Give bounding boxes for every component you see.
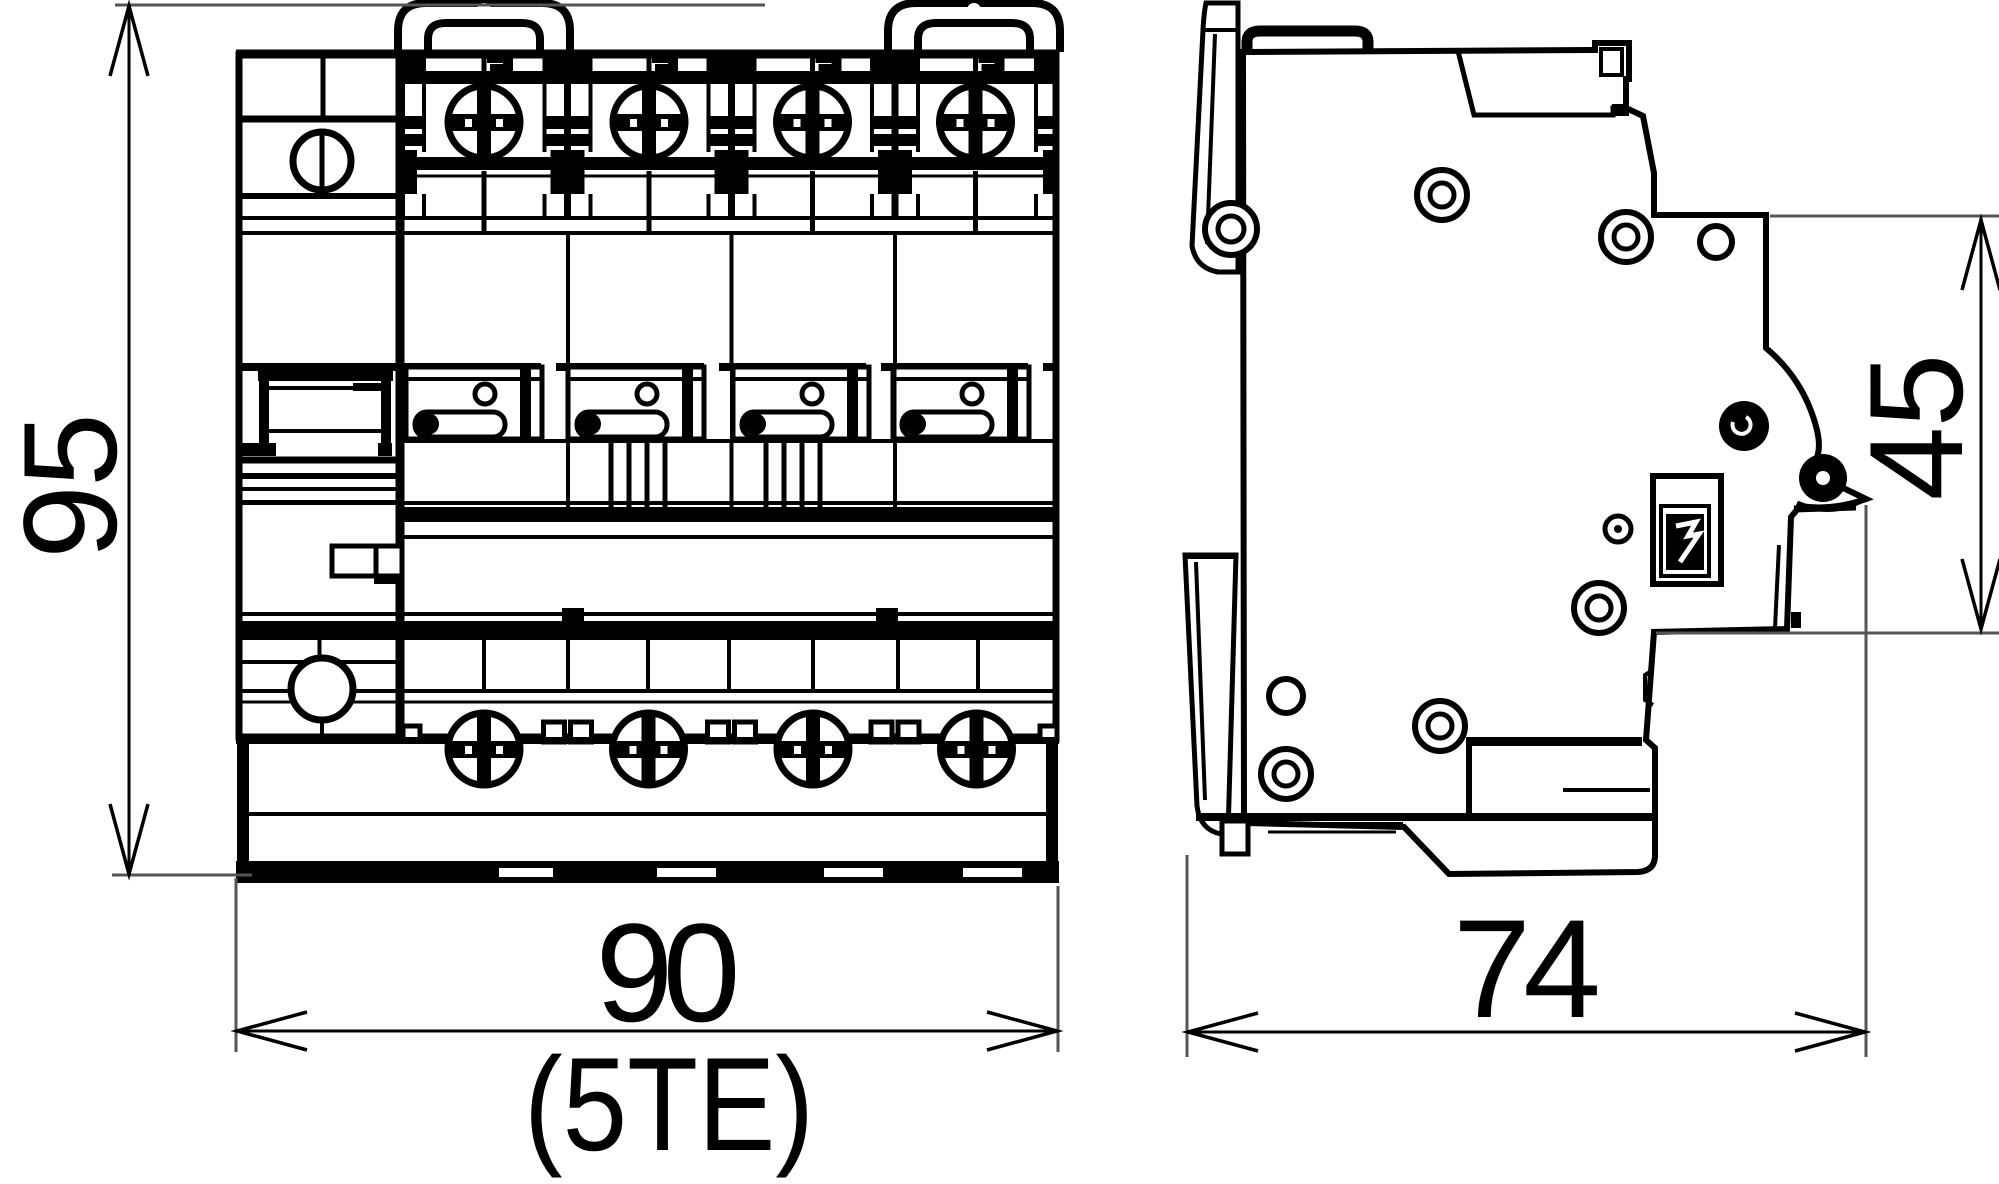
svg-text:45: 45 (1843, 354, 1991, 501)
svg-text:90: 90 (596, 894, 741, 1051)
svg-text:(5TE): (5TE) (524, 1031, 814, 1179)
svg-text:95: 95 (0, 413, 145, 559)
svg-text:74: 74 (1453, 890, 1601, 1047)
